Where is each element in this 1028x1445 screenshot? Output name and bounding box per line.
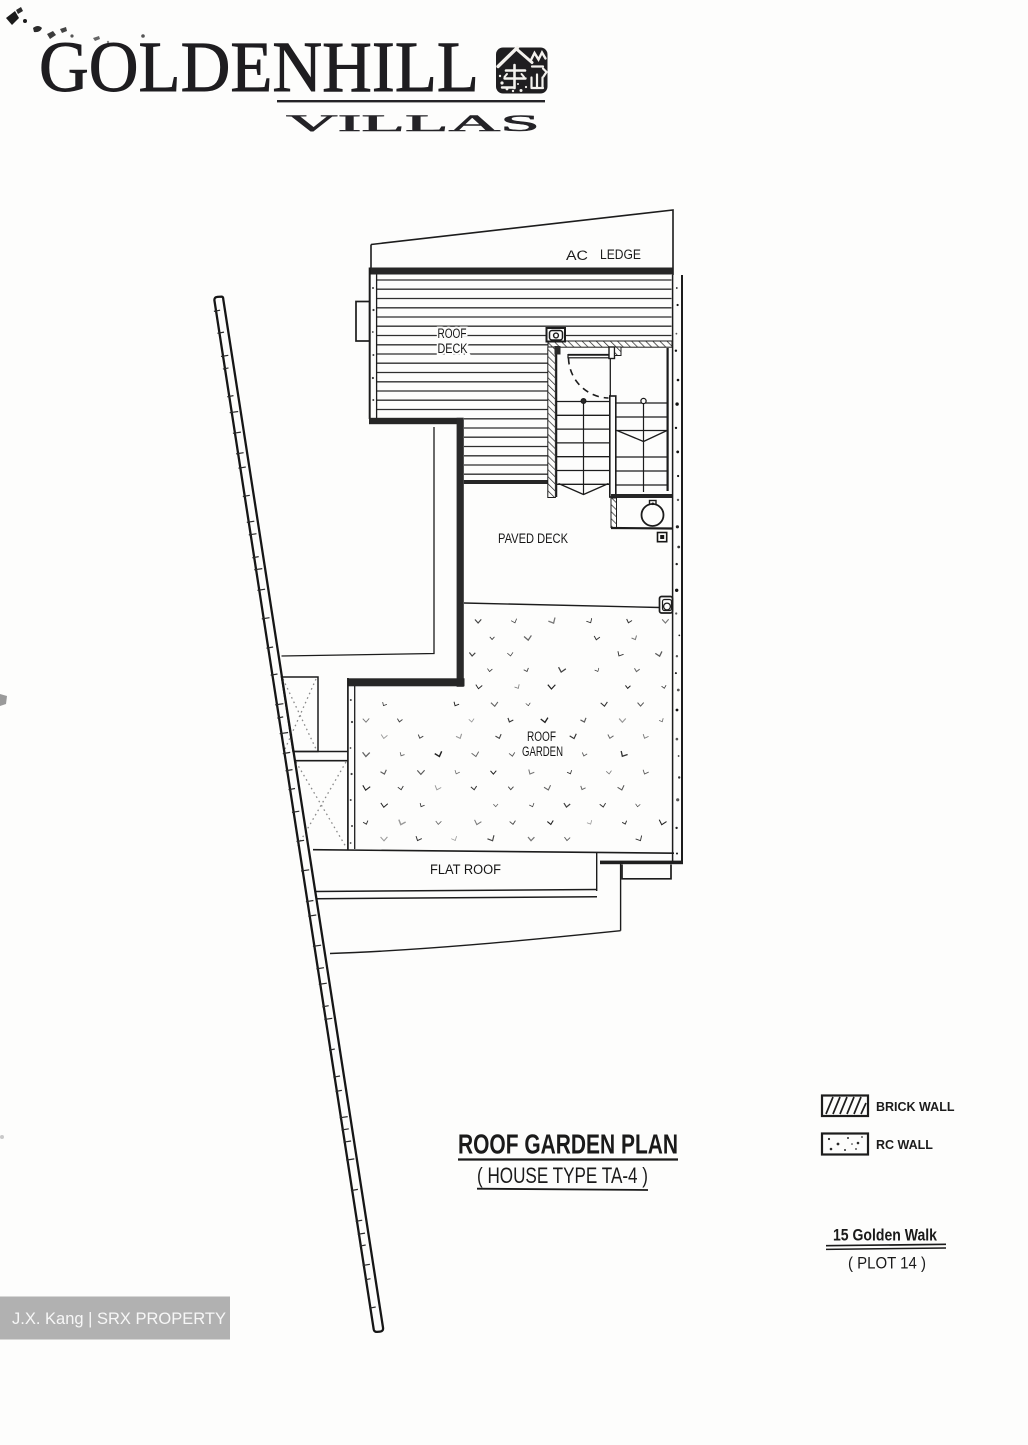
svg-text:ROOF: ROOF [438, 326, 467, 341]
svg-text:ROOF: ROOF [527, 729, 556, 744]
svg-text:VILLAS: VILLAS [286, 111, 540, 136]
svg-text:PAVED DECK: PAVED DECK [498, 531, 568, 546]
svg-text:( PLOT 14 ): ( PLOT 14 ) [848, 1254, 926, 1273]
svg-text:GOLDENHILL: GOLDENHILL [39, 27, 479, 107]
svg-text:BRICK WALL: BRICK WALL [876, 1100, 955, 1114]
svg-text:15 Golden Walk: 15 Golden Walk [833, 1227, 938, 1245]
svg-text:DECK: DECK [438, 341, 468, 356]
svg-text:ROOF GARDEN PLAN: ROOF GARDEN PLAN [458, 1129, 678, 1160]
svg-text:J.X. Kang | SRX PROPERTY: J.X. Kang | SRX PROPERTY [12, 1310, 226, 1328]
svg-text:LEDGE: LEDGE [600, 247, 641, 262]
svg-text:GARDEN: GARDEN [522, 744, 563, 759]
svg-text:AC: AC [566, 248, 588, 263]
svg-text:FLAT ROOF: FLAT ROOF [430, 862, 501, 877]
svg-text:( HOUSE TYPE TA-4 ): ( HOUSE TYPE TA-4 ) [477, 1163, 648, 1188]
svg-text:RC WALL: RC WALL [876, 1138, 933, 1152]
